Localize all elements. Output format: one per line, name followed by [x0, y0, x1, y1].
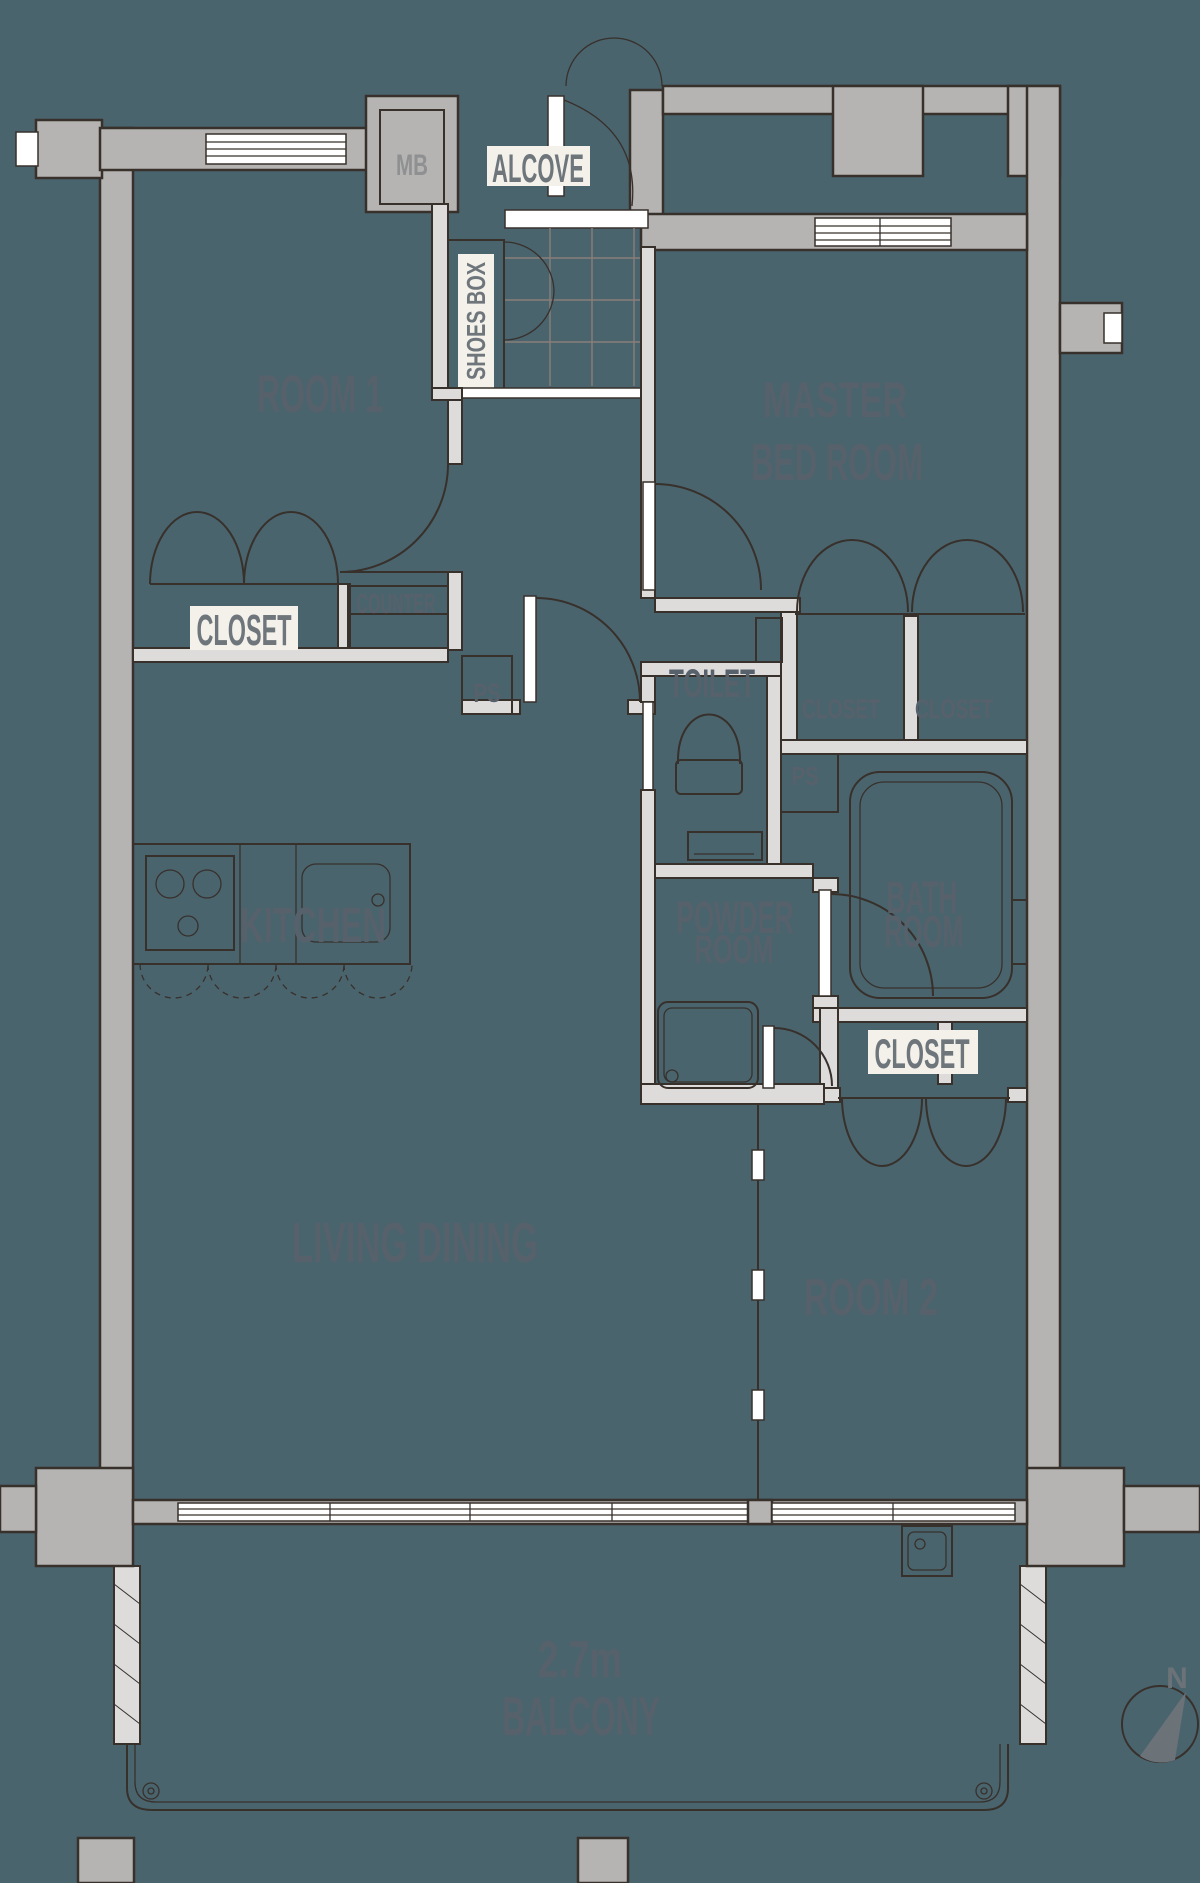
floor-plan: 2.7m BALCONY N	[0, 0, 1200, 1883]
bath-label-line2: ROOM	[885, 906, 964, 957]
pillar-top-center	[833, 86, 923, 176]
pillar-top-left	[36, 120, 102, 178]
wall-genkan-jog	[432, 388, 462, 400]
balcony-wall-left	[114, 1566, 140, 1744]
pillar-bottom-left	[36, 1468, 133, 1566]
wall-room1-genkan	[432, 204, 448, 394]
kitchen-label: KITCHEN	[240, 899, 386, 953]
balcony-depth-label: 2.7m	[538, 1631, 622, 1689]
living-door-leaf	[524, 596, 536, 702]
wall-master-south	[655, 598, 800, 612]
alcove-label: ALCOVE	[492, 147, 584, 191]
counter-label: COUNTER	[357, 588, 436, 619]
balcony-label: BALCONY	[502, 1685, 660, 1747]
closet-room2-jamb-right	[1008, 1088, 1027, 1102]
closet-room1-label: CLOSET	[197, 606, 292, 655]
bath-door-leaf	[819, 890, 831, 996]
meter-box-label: MB	[396, 149, 428, 182]
master-bedroom-window	[815, 218, 951, 246]
wall-bath-bottom	[813, 1008, 1027, 1022]
wall-closet-master-bottom	[781, 740, 1027, 754]
master-bedroom-label-line2: BED ROOM	[751, 434, 923, 492]
ps-right-label: PS	[792, 761, 819, 791]
toilet-doorway	[643, 702, 653, 790]
wall-powder-top	[655, 864, 813, 878]
entry-side-wall	[630, 90, 663, 216]
compass-north-label: N	[1166, 1662, 1188, 1695]
closet-room2-label: CLOSET	[875, 1030, 970, 1077]
closet-master-left-label: CLOSET	[802, 694, 880, 724]
partition-track-mark-3	[752, 1390, 764, 1420]
floor-plan-canvas: 2.7m BALCONY N	[0, 0, 1200, 1883]
pillar-bottom-right	[1027, 1468, 1124, 1566]
wall-living-right-b	[641, 790, 655, 1084]
wall-living-right-a	[641, 676, 655, 702]
closet-master-right-label: CLOSET	[915, 694, 993, 724]
stub-bottom-right	[1124, 1486, 1200, 1532]
room1-label: ROOM 1	[257, 365, 383, 424]
outer-wall-left	[100, 128, 133, 1500]
window-slit-right	[1104, 313, 1122, 343]
wall-toilet-right	[767, 676, 781, 866]
master-bedroom-label-line1: MASTER	[763, 372, 907, 428]
toilet-label: TOILET	[669, 662, 755, 706]
balcony-partition-stub-center	[578, 1838, 628, 1883]
wall-corridor-left-lower	[448, 572, 462, 650]
stub-bottom-left	[0, 1486, 36, 1532]
wall-closet-master-left	[781, 612, 797, 754]
bottom-wall-mullion	[748, 1500, 772, 1524]
room2-label: ROOM 2	[804, 1269, 938, 1327]
shoes-box-label: SHOES BOX	[461, 261, 491, 380]
closet-room2-jamb-left	[824, 1088, 840, 1102]
living-dining-label: LIVING DINING	[292, 1211, 538, 1275]
partition-track-mark-2	[752, 1270, 764, 1300]
window-slit-top-left	[16, 132, 38, 166]
genkan-step	[462, 388, 650, 398]
ps-left-label: PS	[474, 678, 501, 708]
outer-wall-right	[1027, 86, 1060, 1500]
living-balcony-window	[178, 1503, 748, 1521]
powder-label-line2: ROOM	[695, 928, 774, 972]
wall-corridor-left-upper	[448, 400, 462, 464]
balcony-partition-stub-left	[78, 1838, 134, 1883]
balcony-wall-right	[1020, 1566, 1046, 1744]
partition-track-mark-1	[752, 1150, 764, 1180]
powder-door-leaf	[763, 1026, 774, 1088]
master-door-leaf	[643, 482, 655, 590]
entrance-threshold	[505, 210, 648, 228]
